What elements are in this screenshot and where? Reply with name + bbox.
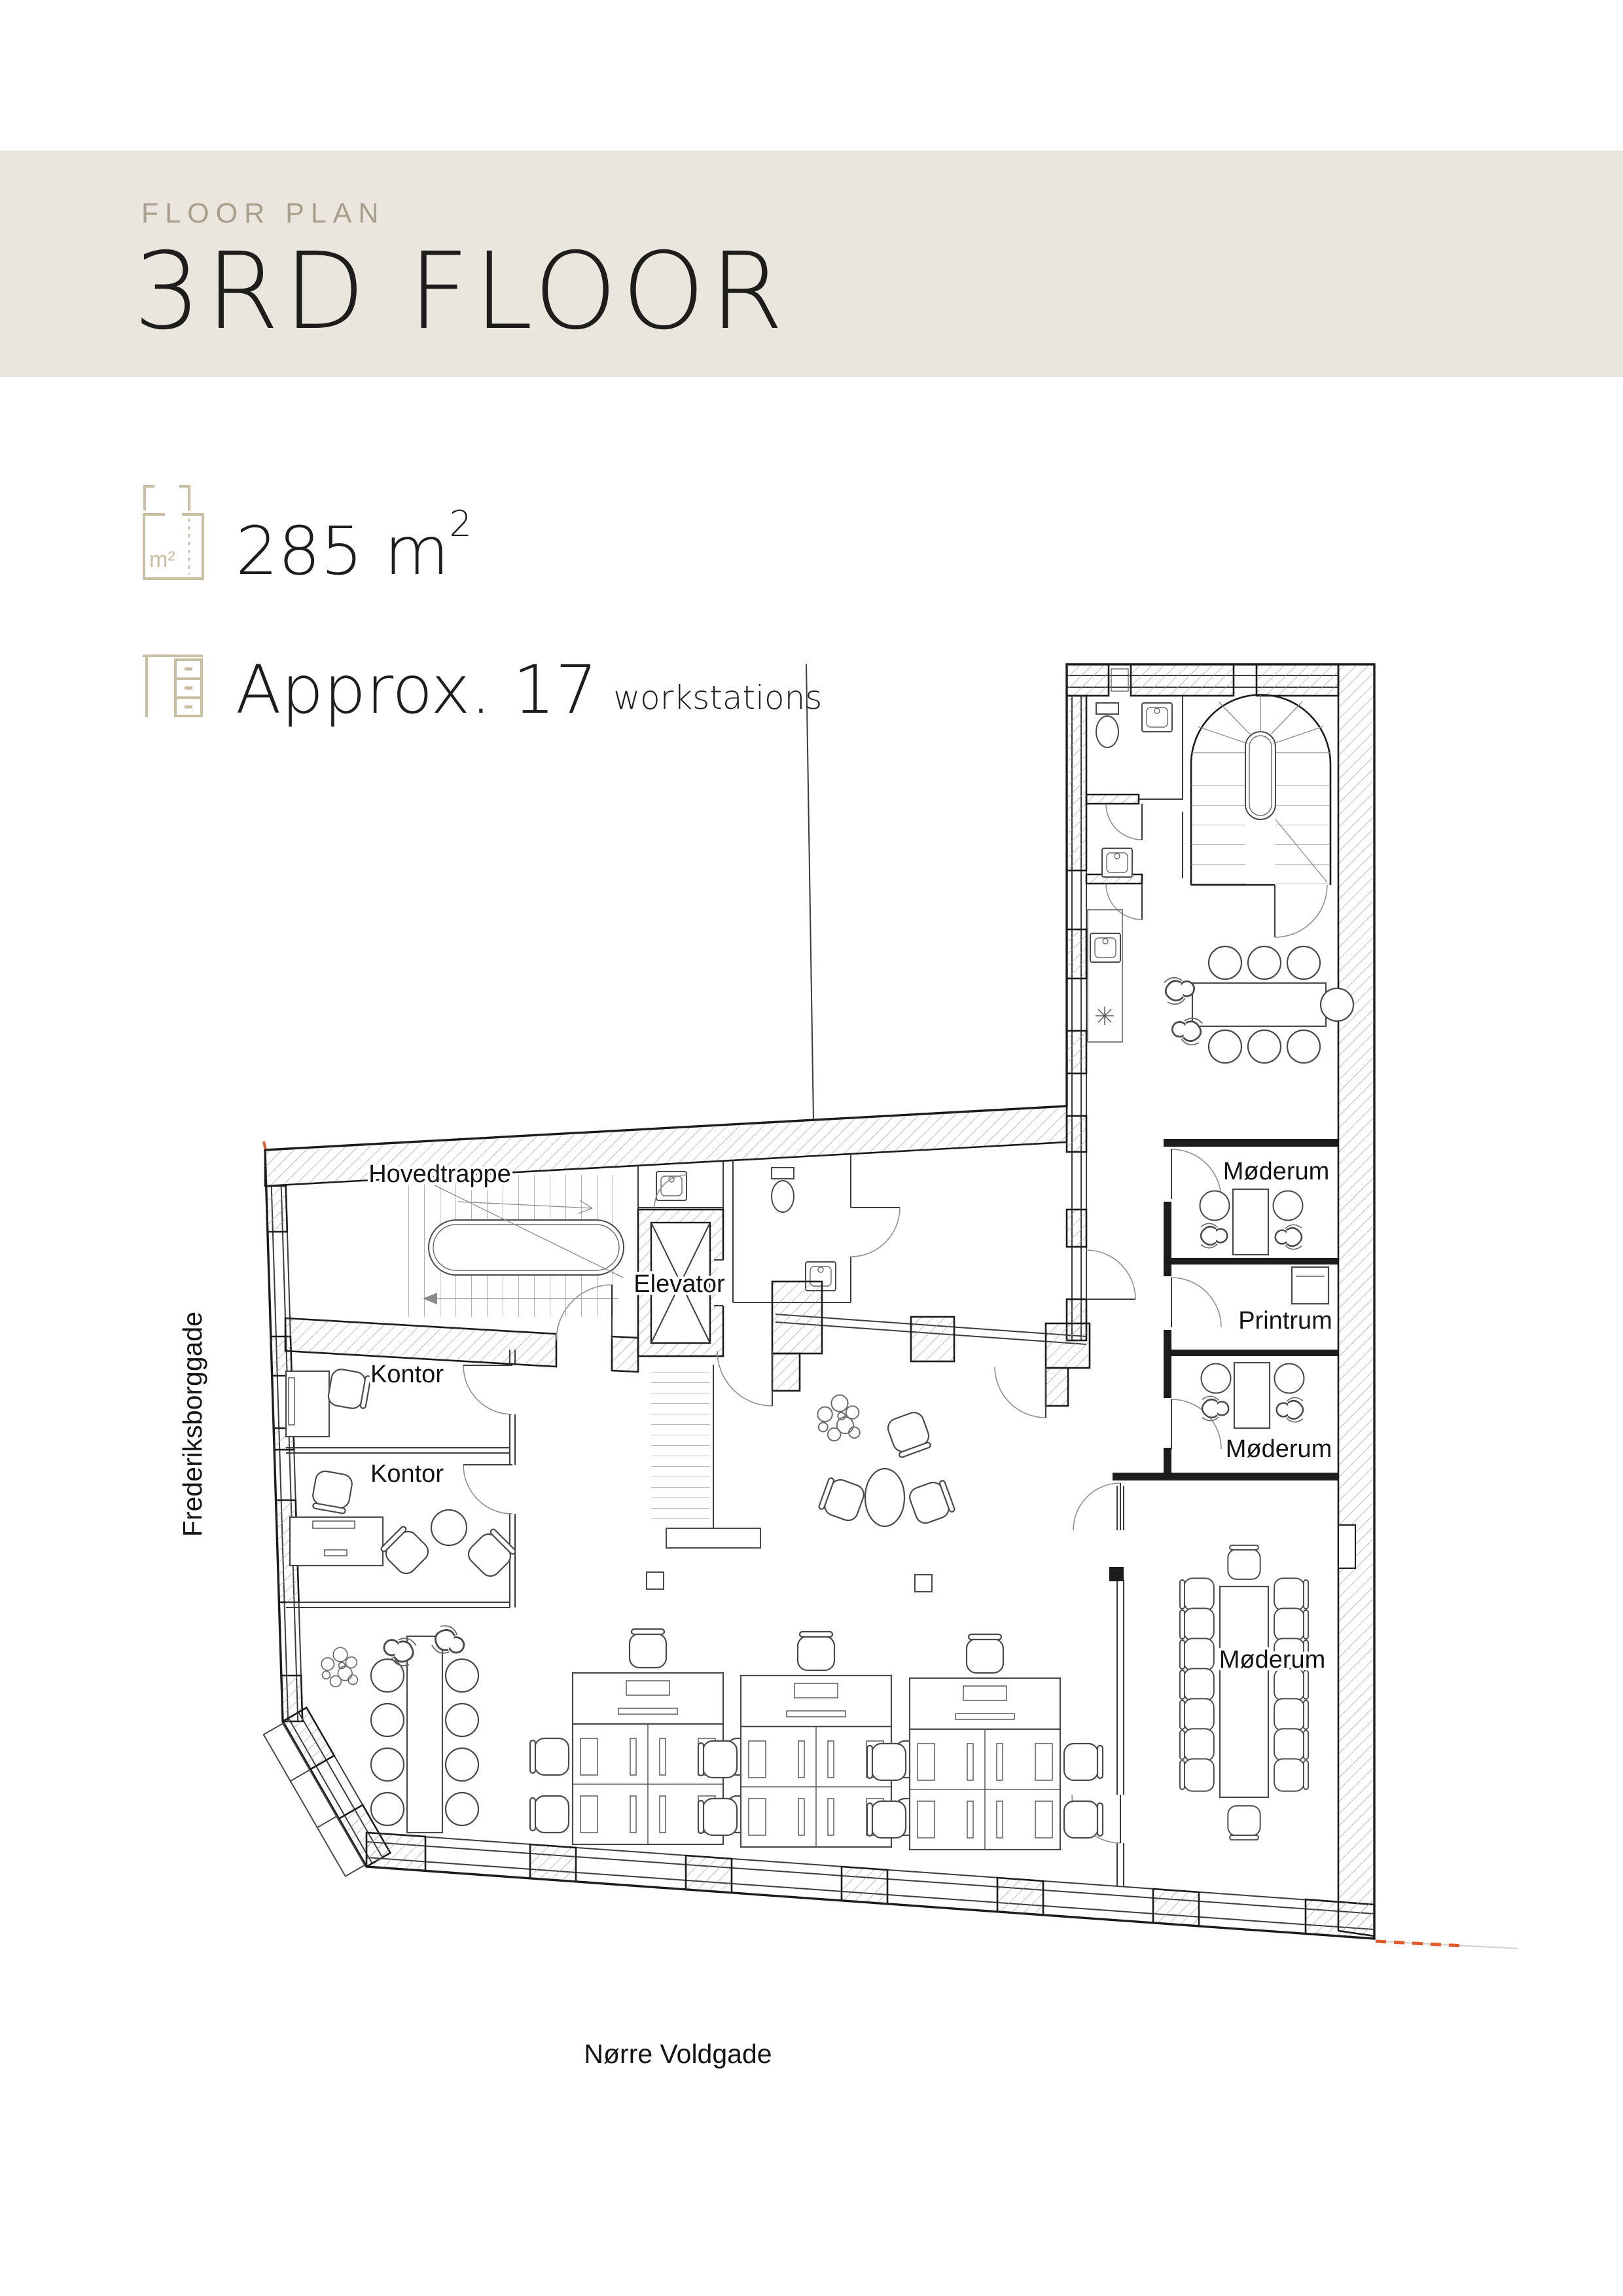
room-label-printrum: Printrum xyxy=(1238,1307,1332,1335)
street-label-noerre-voldgade: Nørre Voldgade xyxy=(584,2039,772,2069)
room-label-moederum-north: Møderum xyxy=(1223,1158,1330,1185)
room-label-moederum-middle: Møderum xyxy=(1226,1435,1332,1463)
room-label-elevator: Elevator xyxy=(633,1270,725,1298)
room-label-kontor-upper: Kontor xyxy=(370,1361,444,1388)
room-label-hovedtrappe: Hovedtrappe xyxy=(368,1160,511,1188)
courtyard-boundary-line xyxy=(806,664,813,1120)
room-label-moederum-large: Møderum xyxy=(1219,1646,1326,1674)
street-label-frederiksborggade: Frederiksborggade xyxy=(177,1312,207,1537)
room-label-kontor-lower: Kontor xyxy=(370,1460,444,1488)
brochure-page: FLOOR PLAN 3RD FLOOR m² 285 m2 xyxy=(0,0,1623,2296)
floor-plan: Hovedtrappe Elevator Kontor Kontor Møder… xyxy=(0,0,1623,2296)
